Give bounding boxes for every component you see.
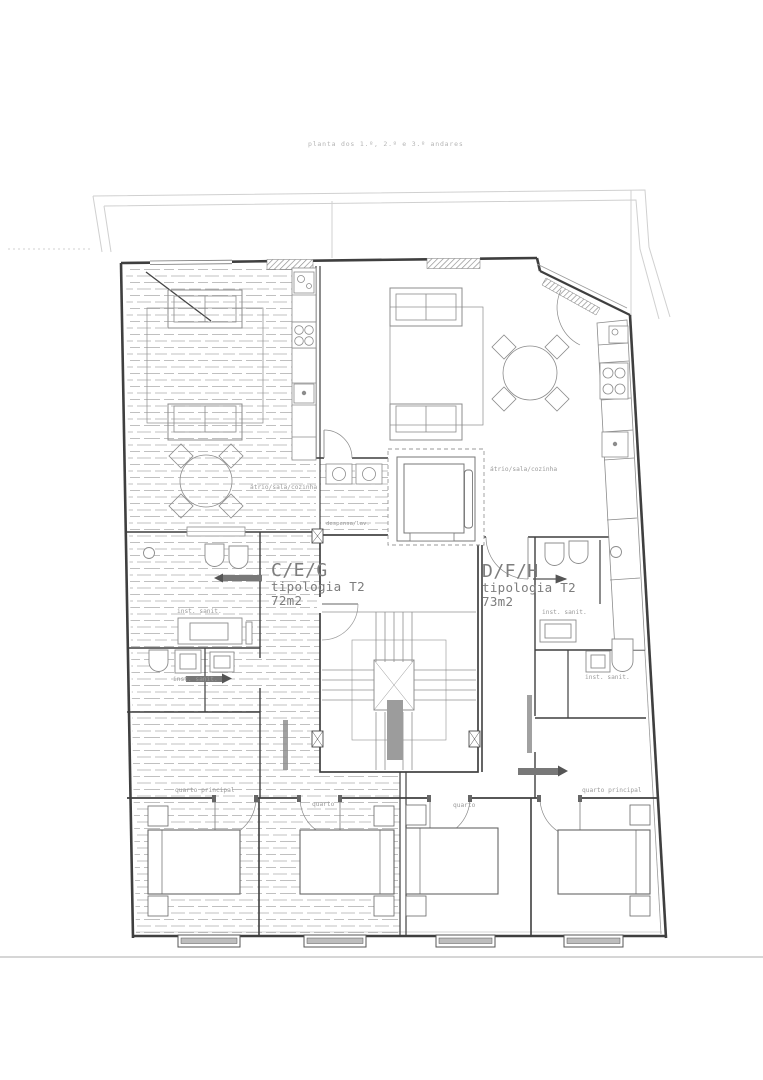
- nightstand: [374, 806, 394, 826]
- top-window-sill: [427, 259, 480, 269]
- living-right-furniture: [390, 288, 569, 440]
- toilet-icon: [545, 543, 564, 566]
- nightstand: [406, 805, 426, 825]
- unit-right-code: D/F/H: [482, 561, 539, 582]
- bidet-icon: [229, 546, 248, 569]
- bed-icon: [558, 805, 650, 916]
- unit-left-typology: tipologia T2: [271, 579, 365, 594]
- unit-right-typology: tipologia T2: [482, 580, 576, 595]
- nightstand: [406, 896, 426, 916]
- nightstand: [630, 896, 650, 916]
- stove-icon: [600, 363, 628, 399]
- boiler-icon: [144, 548, 155, 559]
- kitchen-left: [292, 268, 316, 460]
- sink-icon: [175, 650, 201, 673]
- room-label-right-living: átrio/sala/cozinha: [490, 465, 557, 473]
- sink-icon: [609, 326, 628, 343]
- floor-plan-page: planta dos 1.º, 2.º e 3.º andares C/E/G …: [0, 0, 763, 1080]
- room-label-left-master: quarto principal: [175, 787, 235, 794]
- room-label-right-bath-lower: inst. sanit.: [585, 674, 630, 681]
- nightstand: [148, 806, 168, 826]
- room-label-left-bath-upper: inst. sanit.: [177, 608, 222, 615]
- drawing-title: planta dos 1.º, 2.º e 3.º andares: [308, 140, 464, 148]
- sofa-icon: [390, 404, 462, 440]
- room-label-right-bath-upper: inst. sanit.: [542, 609, 587, 616]
- unit-right-label: D/F/H tipologia T2 73m2: [482, 561, 576, 609]
- bed-icon: [406, 805, 498, 916]
- sink-icon: [294, 272, 314, 293]
- bathtub-icon: [612, 639, 633, 672]
- room-label-left-bedroom: quarto: [312, 801, 335, 808]
- toilet-icon: [149, 650, 168, 671]
- washer-icon: [356, 464, 382, 484]
- washer-icon: [326, 464, 352, 484]
- dining-table-icon: [492, 335, 569, 411]
- room-label-right-bedroom: quarto: [453, 802, 476, 809]
- room-label-pantry: despensa/lav.: [326, 521, 370, 527]
- nightstand: [630, 805, 650, 825]
- room-label-left-living: átrio/sala/cozinha: [250, 483, 317, 491]
- sink-icon: [586, 651, 610, 672]
- elevator: [388, 449, 484, 545]
- room-label-right-master: quarto principal: [582, 787, 642, 794]
- bidet-icon: [569, 541, 588, 564]
- top-window: [150, 260, 232, 264]
- unit-right-area: 73m2: [482, 594, 513, 609]
- unit-left-area: 72m2: [271, 593, 302, 608]
- floor-plan-canvas: planta dos 1.º, 2.º e 3.º andares C/E/G …: [0, 0, 763, 1080]
- nightstand: [374, 896, 394, 916]
- staircase: [312, 529, 480, 772]
- unit-left-code: C/E/G: [271, 560, 328, 581]
- kitchen-right: [597, 320, 645, 650]
- stair-core-wall: [387, 700, 403, 760]
- rug: [390, 307, 483, 425]
- room-label-left-bath-lower: inst. sanit.: [173, 676, 218, 683]
- nightstand: [148, 896, 168, 916]
- boiler-icon: [611, 547, 622, 558]
- toilet-icon: [205, 544, 224, 567]
